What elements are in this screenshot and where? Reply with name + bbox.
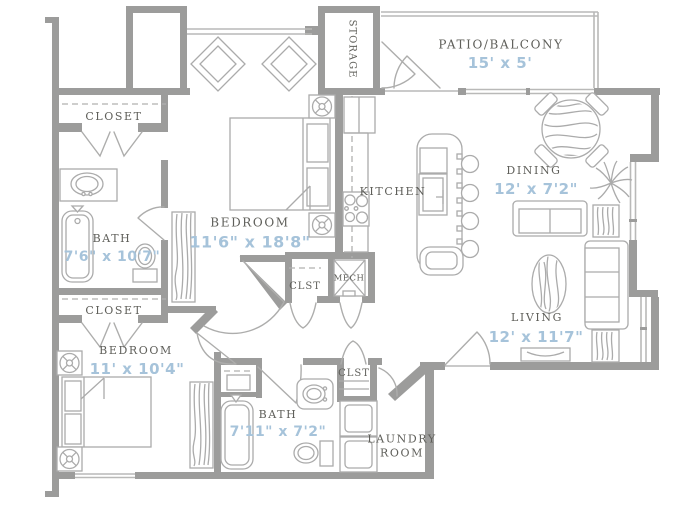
side-table-icon <box>593 205 619 237</box>
nightstand-lamp-icon <box>57 447 82 471</box>
plant-icon <box>532 255 566 313</box>
nightstand-lamp-icon <box>309 213 335 237</box>
armchair-icon <box>420 247 463 275</box>
bottom-window <box>75 472 135 479</box>
bedroom2-label: BEDROOM <box>99 344 173 358</box>
side-table-icon <box>592 330 619 362</box>
dresser-icon <box>172 212 195 302</box>
bath1-dimension: 7'6" x 10'7" <box>64 249 161 265</box>
bath2-dimension: 7'11" x 7'2" <box>230 424 327 440</box>
dining-dimension: 12' x 7'2" <box>494 180 578 198</box>
dresser-icon <box>190 382 213 468</box>
bath1-door <box>138 207 164 240</box>
bath2-door <box>258 365 301 403</box>
living-door <box>445 332 490 365</box>
bedroom1-dimension: 11'6" x 18'8" <box>189 233 310 252</box>
bathtub-icon <box>62 206 93 282</box>
bedroom1-window <box>187 29 312 34</box>
toilet-icon <box>294 441 333 466</box>
laundry-label: LAUNDRY ROOM <box>367 432 436 460</box>
bed-icon <box>62 377 151 447</box>
kitchen-label: KITCHEN <box>360 185 427 199</box>
nightstand-lamp-icon <box>309 95 335 118</box>
bath1-label: BATH <box>93 232 132 246</box>
patio-label: PATIO/BALCONY <box>438 38 563 53</box>
fridge-icon <box>344 97 375 133</box>
mech-door <box>340 303 362 328</box>
patio-dimension: 15' x 5' <box>468 54 533 72</box>
living-dimension: 12' x 11'7" <box>489 328 584 346</box>
closet-top-label: CLOSET <box>85 110 142 124</box>
storage-label: STORAGE <box>345 20 358 79</box>
nightstand-lamp-icon <box>57 351 82 375</box>
loveseat-icon <box>513 201 587 236</box>
bathroom-sink-icon <box>60 169 117 201</box>
dining-bay-window <box>631 162 636 240</box>
bed-icon <box>230 118 330 210</box>
armchair-icon <box>191 37 245 91</box>
hall-closet-door <box>290 303 316 328</box>
hall-closet-label: CLST <box>289 281 321 294</box>
closet-mid-label: CLOSET <box>85 304 142 318</box>
bath-closet-door <box>341 341 366 364</box>
laundry-label-line2: ROOM <box>380 446 424 459</box>
washer-icon <box>340 401 377 436</box>
bathroom-sink-icon <box>297 379 333 409</box>
armchair-icon <box>262 37 316 91</box>
bath2-label: BATH <box>259 408 298 422</box>
floor-plan: PATIO/BALCONY 15' x 5' STORAGE CLOSET BA… <box>0 0 700 511</box>
bedroom1-label: BEDROOM <box>210 216 289 231</box>
living-label: LIVING <box>511 311 563 325</box>
laundry-label-line1: LAUNDRY <box>367 432 436 445</box>
closet-top-doors <box>82 132 142 156</box>
linen-shelf-icon <box>227 375 250 390</box>
mech-label: MECH <box>334 274 365 285</box>
media-console-icon <box>521 348 570 361</box>
bath-closet-label: CLST <box>338 368 370 381</box>
sofa-icon <box>585 241 628 329</box>
plant-icon <box>590 161 632 203</box>
dining-label: DINING <box>506 164 561 178</box>
entry-door-left <box>382 42 415 88</box>
dining-table-icon <box>542 100 600 158</box>
bedroom2-dimension: 11' x 10'4" <box>90 360 185 378</box>
